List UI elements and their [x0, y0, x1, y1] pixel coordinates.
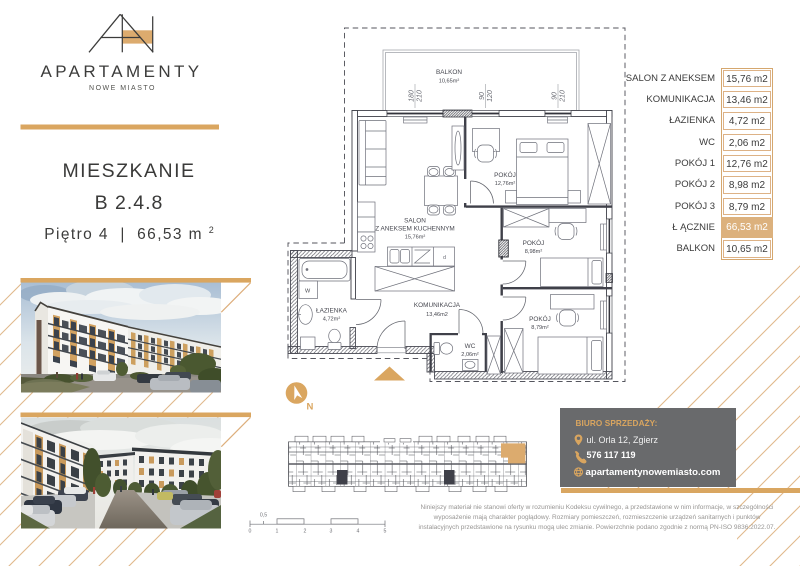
svg-text:4,72m²: 4,72m² — [323, 317, 341, 323]
svg-text:KOMUNIKACJA: KOMUNIKACJA — [414, 302, 461, 309]
svg-text:15,76m²: 15,76m² — [405, 235, 426, 241]
svg-text:0,5: 0,5 — [260, 513, 267, 519]
svg-text:POKÓJ: POKÓJ — [529, 314, 551, 323]
svg-text:POKÓJ: POKÓJ — [523, 238, 545, 247]
svg-text:3: 3 — [330, 529, 333, 535]
svg-text:90: 90 — [552, 92, 559, 100]
svg-text:POKÓJ: POKÓJ — [494, 170, 516, 179]
svg-text:210: 210 — [560, 90, 567, 103]
svg-text:120: 120 — [487, 90, 494, 102]
svg-text:12,76m²: 12,76m² — [495, 181, 516, 187]
svg-text:8,79m²: 8,79m² — [531, 325, 549, 331]
svg-text:SALON: SALON — [404, 218, 426, 225]
svg-text:2,06m²: 2,06m² — [461, 352, 479, 358]
svg-text:N: N — [307, 402, 314, 413]
svg-text:10,65m²: 10,65m² — [439, 79, 460, 85]
svg-text:180: 180 — [409, 90, 416, 102]
svg-text:W: W — [305, 289, 311, 295]
svg-text:Z ANEKSEM KUCHENNYM: Z ANEKSEM KUCHENNYM — [375, 226, 455, 233]
svg-text:4: 4 — [357, 529, 360, 535]
svg-text:210: 210 — [417, 90, 424, 103]
svg-text:13,46m2: 13,46m2 — [426, 312, 448, 318]
svg-text:90: 90 — [479, 92, 486, 100]
svg-text:0: 0 — [249, 529, 252, 535]
svg-text:2: 2 — [304, 529, 307, 535]
svg-text:ŁAZIENKA: ŁAZIENKA — [316, 308, 348, 315]
svg-text:1: 1 — [276, 529, 279, 535]
svg-text:WC: WC — [465, 343, 476, 350]
svg-text:BALKON: BALKON — [436, 69, 462, 76]
svg-text:d: d — [443, 255, 446, 261]
svg-text:8,98m²: 8,98m² — [525, 249, 543, 255]
